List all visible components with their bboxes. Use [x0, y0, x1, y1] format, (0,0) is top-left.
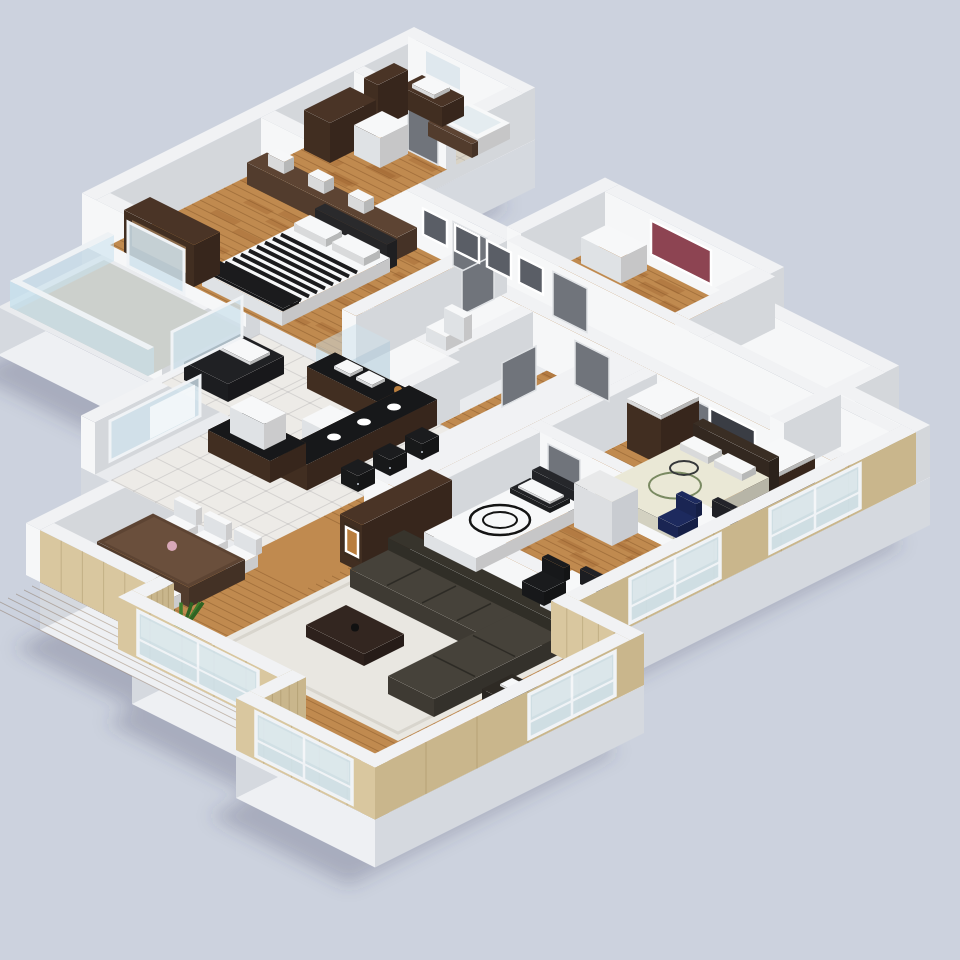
- floor-plan-rendering: [0, 0, 960, 960]
